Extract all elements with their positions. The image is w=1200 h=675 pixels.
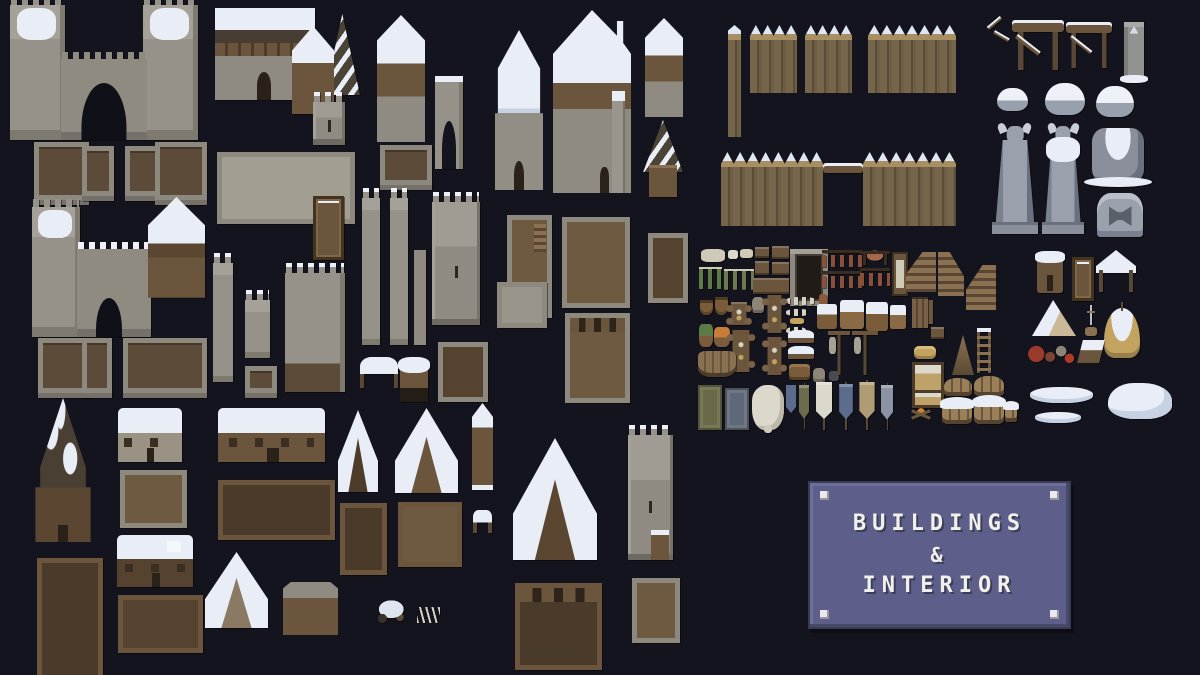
- hanging-meat-rack: [860, 268, 890, 286]
- snow-covered-barrel-b: [890, 305, 906, 329]
- wooden-staircase-b: [938, 252, 964, 296]
- herb-garland-a: [699, 267, 722, 295]
- screw-icon: [1050, 610, 1059, 619]
- snow-covered-barrel-a: [840, 300, 864, 329]
- stone-gate-arch: [435, 76, 463, 169]
- drying-rack-tools-b: [852, 331, 878, 375]
- antler-wall-trophy: [701, 249, 725, 262]
- spit-roast-pig: [860, 247, 890, 265]
- dining-set-small: [726, 305, 752, 325]
- plate-title-line-2: &: [930, 545, 948, 565]
- stone-house-tower: [645, 18, 683, 117]
- drying-rack-tools-a: [828, 331, 850, 375]
- open-shelter-canopy: [1096, 250, 1136, 292]
- meat-hanging-rack-b: [822, 271, 862, 288]
- timber-watchtower-snowcap: [377, 15, 425, 142]
- wall-column-floor: [245, 366, 277, 393]
- castle-wall-walk-interior-f: [82, 338, 112, 393]
- carved-door-snow: [1072, 257, 1094, 301]
- palisade-single-post: [728, 25, 741, 137]
- house-snowy-roof-dormer: [117, 535, 193, 587]
- palisade-segment-long: [868, 25, 956, 93]
- tall-house-antler-emblem: [338, 410, 378, 492]
- screw-icon: [820, 491, 829, 500]
- snow-covered-bench-a: [788, 330, 814, 343]
- wooden-crate-panel: [931, 327, 944, 339]
- feast-table-b: [762, 337, 787, 375]
- tall-wooden-church-tower: [33, 398, 93, 542]
- stone-watchtower-interior: [632, 578, 680, 643]
- watchtower-floor-interior: [380, 145, 432, 185]
- food-plates-row-b: [786, 309, 810, 316]
- firewood-pile-b: [974, 376, 1004, 396]
- wooden-staircase-landing: [966, 265, 996, 310]
- viking-statue: [992, 123, 1038, 234]
- firewood-pile-a: [944, 378, 972, 396]
- title-plate: BUILDINGS & INTERIOR: [808, 481, 1071, 629]
- a-frame-house-interior: [398, 502, 462, 567]
- snow-covered-rock-cluster: [1045, 83, 1085, 115]
- plate-title-line-1: BUILDINGS: [853, 513, 1026, 535]
- woven-basket-a: [700, 300, 713, 315]
- snow-drift-long: [1030, 387, 1093, 403]
- bread-loaf: [790, 318, 804, 324]
- snow-covered-sign-stall: [473, 510, 492, 533]
- interior-stone-landing: [497, 282, 547, 328]
- plate-title-line-3: INTERIOR: [863, 575, 1017, 597]
- castle-gatehouse-twin-towers: [10, 5, 198, 140]
- square-keep-tower: [432, 202, 480, 325]
- storage-barrel: [789, 364, 810, 380]
- snow-covered-crate-a: [817, 304, 837, 329]
- snowy-lean-to: [1077, 340, 1105, 363]
- castle-wall-walk-interior-b: [82, 146, 114, 196]
- interior-great-room: [562, 217, 630, 308]
- battle-aftermath-debris: [1028, 342, 1074, 366]
- campfire-logs: [908, 403, 934, 423]
- wall-banner-blue: [786, 385, 796, 413]
- crenellated-wall-column-a: [213, 263, 233, 382]
- standing-banner-gray: [879, 383, 895, 430]
- small-antler-trophy: [740, 249, 753, 258]
- longhouse-interior: [218, 480, 335, 540]
- sprite-sheet-canvas: BUILDINGS & INTERIOR: [0, 0, 1200, 675]
- square-tower-floor-interior: [438, 342, 488, 402]
- snow-covered-rock-pile: [1096, 86, 1134, 117]
- plank-fence-segment: [912, 297, 928, 328]
- feast-table-a: [762, 295, 787, 333]
- snow-covered-outhouse: [1037, 253, 1063, 293]
- wooden-barn-shed: [283, 582, 338, 635]
- a-frame-house: [395, 408, 458, 493]
- snow-covered-stall-awning: [400, 360, 428, 402]
- hitching-beam-snowy-b: [1066, 22, 1112, 68]
- interior-room-three-doors: [565, 313, 630, 403]
- palisade-segment-short-b: [805, 25, 852, 93]
- cupboard-b: [772, 262, 789, 275]
- animal-pelt-rug: [752, 385, 784, 430]
- sword-in-ground: [1086, 305, 1096, 325]
- support-post: [928, 300, 933, 324]
- rune-stone-pillar: [1124, 22, 1144, 80]
- stone-watchtower-snowy-porch: [628, 435, 673, 560]
- notice-board: [892, 252, 908, 296]
- stone-hall-side-tower: [313, 102, 345, 145]
- firewood-pile-snow-small: [1005, 404, 1017, 422]
- firewood-pile-snow-a: [942, 400, 972, 424]
- great-longhouse-a-frame: [513, 438, 597, 560]
- ruined-statue-snow: [1092, 128, 1144, 183]
- floor-rug-blue: [725, 388, 749, 430]
- palisade-gate-right-wing: [863, 152, 956, 226]
- castle-wall-walk-interior-g: [123, 338, 207, 393]
- broken-cart-snow: [372, 600, 407, 623]
- wall-cabinet-b: [772, 246, 789, 259]
- castle-wall-walk-interior-a: [34, 142, 89, 200]
- canvas-tent-snow: [1032, 300, 1076, 336]
- cupboard-a: [755, 261, 769, 275]
- hitching-beam-snowy-a: [1012, 20, 1064, 70]
- standing-banner-fur: [813, 380, 835, 430]
- tall-wall-column-a: [362, 198, 380, 345]
- standing-banner-olive: [797, 383, 811, 429]
- broken-sticks: [986, 18, 1010, 40]
- wood-tripod-stack: [952, 335, 974, 375]
- snowy-ladder: [977, 328, 991, 373]
- stone-side-wall-strip: [414, 250, 426, 345]
- snowy-haystack: [1104, 308, 1140, 358]
- crenellated-wall-column-b: [245, 300, 270, 358]
- castle-keep-large: [553, 10, 631, 193]
- stone-house-interior: [120, 470, 187, 528]
- church-tower-interior: [37, 558, 103, 675]
- wooden-tower-snowy-pine: [643, 120, 683, 197]
- crenellated-wall-block: [285, 273, 345, 392]
- interior-room-small: [648, 233, 688, 303]
- long-dresser: [753, 278, 789, 294]
- stone-pedestal-axe-relief: [1097, 193, 1143, 237]
- dormer-house-interior: [118, 595, 203, 653]
- wall-cabinet-a: [755, 247, 769, 258]
- firewood-pile-snow-b: [974, 398, 1004, 424]
- hay-bale: [914, 346, 936, 359]
- fallen-helmet: [1085, 327, 1097, 336]
- snow-covered-market-stall: [360, 357, 398, 388]
- snow-covered-bench-b: [788, 346, 814, 359]
- standing-banner-blue: [837, 382, 855, 430]
- animal-bones: [417, 607, 440, 623]
- snow-covered-crate-b: [866, 302, 888, 331]
- palisade-segment-short-a: [750, 25, 797, 93]
- tall-house-interior: [340, 503, 387, 575]
- meat-hanging-rack-a: [822, 250, 862, 267]
- skull-trophy: [728, 250, 738, 259]
- viking-statue-snow-covered: [1042, 123, 1084, 234]
- snow-drift-small: [1035, 412, 1081, 423]
- castle-gatehouse-with-chapel: [32, 197, 205, 337]
- wooden-watchtower: [472, 403, 493, 490]
- food-plates-row-a: [786, 297, 816, 305]
- screw-icon: [820, 610, 829, 619]
- potted-plant: [699, 324, 713, 347]
- firewood-sledge: [698, 351, 736, 377]
- tall-wall-column-b: [390, 198, 408, 345]
- snow-covered-rock-small: [997, 88, 1028, 111]
- herb-garland-b: [724, 269, 754, 295]
- floor-rug-green: [698, 385, 722, 430]
- great-longhouse-interior: [515, 583, 602, 670]
- castle-wall-walk-interior-d: [155, 142, 207, 200]
- longhouse-antler-gable: [218, 408, 325, 462]
- standing-banner-tan: [857, 380, 877, 430]
- palisade-gate-lintel-beam: [823, 163, 863, 173]
- snow-mound-large: [1108, 383, 1172, 419]
- wooden-staircase-a: [906, 252, 936, 292]
- screw-icon: [1050, 491, 1059, 500]
- a-frame-cottage: [205, 552, 268, 628]
- tall-snow-roof-tower: [495, 30, 543, 190]
- stone-house-snowy-flat-roof: [118, 408, 182, 462]
- palisade-gate-left-wing: [721, 152, 823, 226]
- tall-wooden-door-panel: [313, 196, 344, 260]
